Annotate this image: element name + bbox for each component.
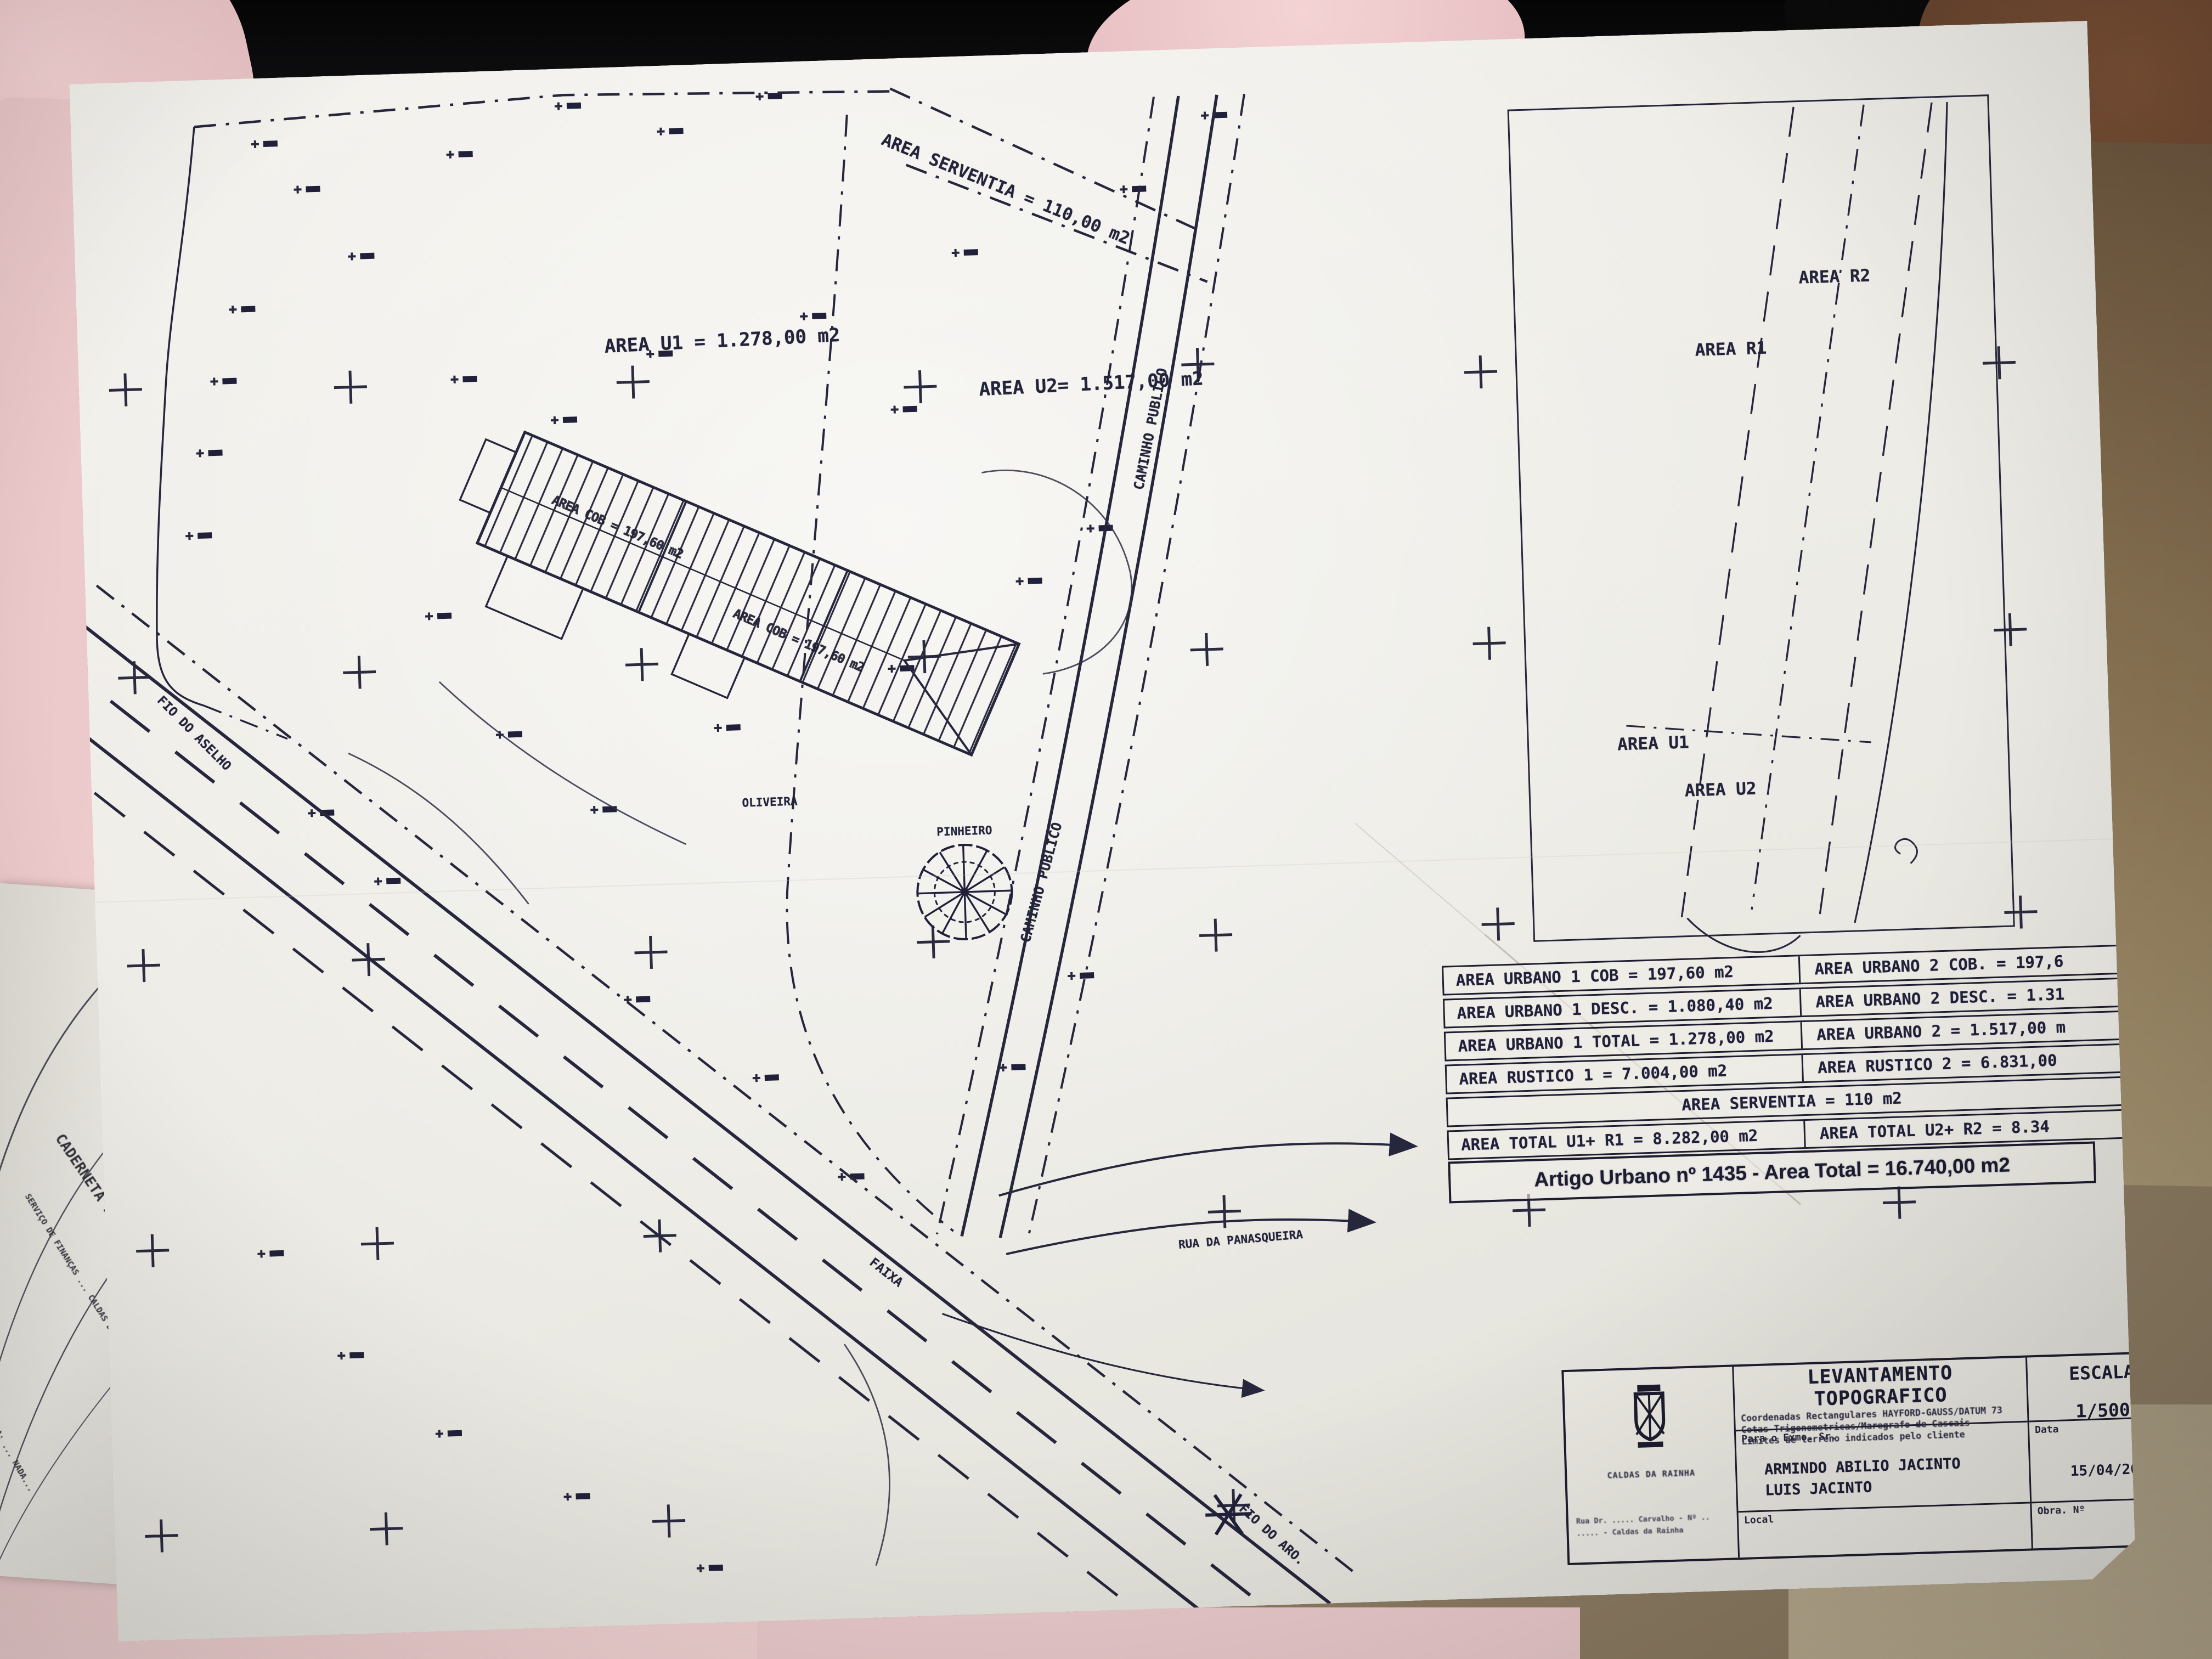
area-urbano2-total: AREA URBANO 2 = 1.517,00 m [1816, 1018, 2066, 1044]
area-urbano1-cob: AREA URBANO 1 COB = 197,60 m2 [1455, 962, 1734, 990]
inset-label-area-r2: AREA R2 [1798, 266, 1871, 288]
title-block-right-cell: ESCALA 1/500 Data 15/04/20 Obra. Nº [2027, 1353, 2136, 1548]
main-road [69, 547, 1358, 1641]
title-block: CALDAS DA RAINHA Rua Dr. ..... Carvalho … [1561, 1351, 2136, 1565]
label-pinheiro: PINHEIRO [936, 823, 992, 838]
building-hatched: AREA COB = 197,60 m2 AREA COB = 197,60 m… [425, 419, 1019, 805]
data-value: 15/04/20 [2036, 1460, 2136, 1481]
label-oliveira: OLIVEIRA [742, 794, 798, 809]
municipal-crest-icon [1629, 1383, 1670, 1450]
inset-label-area-u2: AREA U2 [1684, 779, 1757, 801]
area-rustico2: AREA RUSTICO 2 = 6.831,00 [1818, 1051, 2057, 1077]
inset-label-area-r1: AREA R1 [1695, 338, 1767, 360]
area-urbano2-cob: AREA URBANO 2 COB. = 197,6 [1814, 952, 2064, 978]
areas-table: AREA URBANO 1 COB = 197,60 m2AREA URBANO… [1442, 944, 2136, 1163]
serventia-corridor [890, 79, 1207, 292]
org-address: Rua Dr. ..... Carvalho - Nº .. ..... - C… [1576, 1511, 1711, 1540]
inset-label-area-u1: AREA U1 [1617, 732, 1690, 754]
escala-label: ESCALA [2033, 1359, 2136, 1385]
area-urbano2-desc: AREA URBANO 2 DESC. = 1.31 [1815, 985, 2065, 1011]
area-serventia-row: AREA SERVENTIA = 110 m2 [1681, 1088, 1902, 1114]
area-total-u1r1: AREA TOTAL U1+ R1 = 8.282,00 m2 [1461, 1126, 1758, 1154]
area-urbano1-desc: AREA URBANO 1 DESC. = 1.080,40 m2 [1457, 994, 1773, 1023]
pine-tree-icon [916, 843, 1013, 940]
survey-plan-sheet: AREA COB = 197,60 m2 AREA COB = 197,60 m… [69, 21, 2136, 1641]
title-block-logo-cell: CALDAS DA RAINHA Rua Dr. ..... Carvalho … [1564, 1367, 1740, 1563]
data-label: Data [2035, 1420, 2136, 1436]
title-block-center-cell: LEVANTAMENTO TOPOGRAFICO Coordenadas Rec… [1734, 1358, 2033, 1558]
area-rustico1: AREA RUSTICO 1 = 7.004,00 m2 [1459, 1061, 1728, 1088]
org-name: CALDAS DA RAINHA [1567, 1466, 1735, 1482]
obra-label: Obra. Nº [2037, 1501, 2136, 1517]
artigo-urbano-total-text: Artigo Urbano nº 1435 - Area Total = 16.… [1534, 1153, 2011, 1191]
area-urbano1-total: AREA URBANO 1 TOTAL = 1.278,00 m2 [1458, 1027, 1774, 1056]
area-total-u2r2: AREA TOTAL U2+ R2 = 8.34 [1819, 1117, 2050, 1143]
photo-scene: CADERNETA PREDIAL UR SERVIÇO DE FINANÇAS… [0, 0, 2212, 1659]
rua-panasqueira-lines [937, 1141, 1423, 1401]
inset-strip-map [1508, 95, 2015, 960]
